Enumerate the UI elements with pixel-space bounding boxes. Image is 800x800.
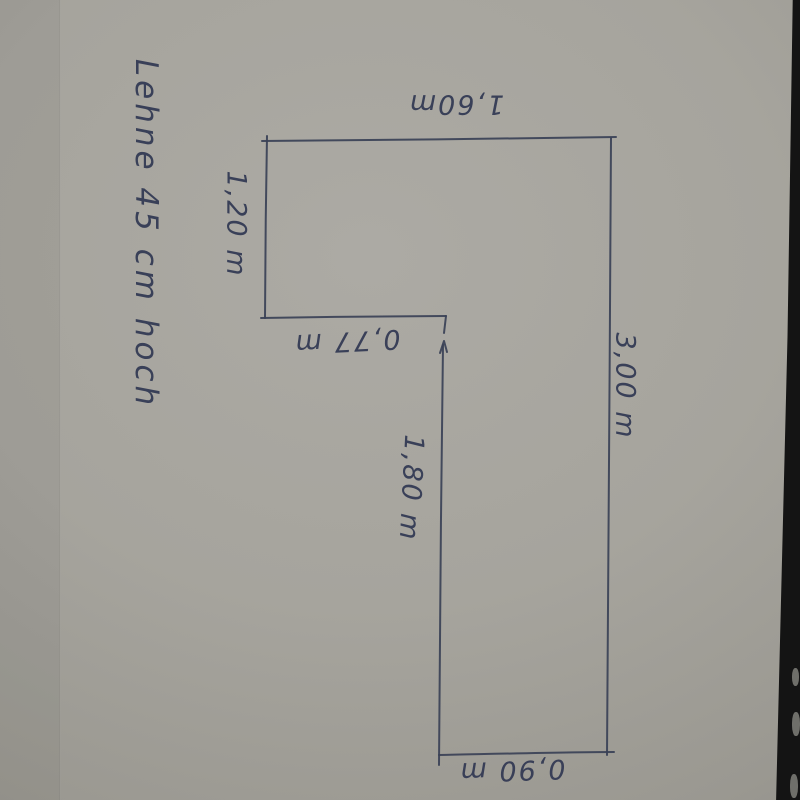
edge-highlight-blob bbox=[792, 712, 800, 736]
shape-top-edge bbox=[262, 137, 616, 141]
shape-right-edge bbox=[607, 138, 611, 755]
dimension-label-right: 3,00 m bbox=[610, 332, 641, 439]
shape-inner-horizontal-edge bbox=[261, 316, 446, 318]
paper-photo-background: 1,60m 1,20 m 0,77 m 3,00 m 1,80 m 0,90 m… bbox=[0, 0, 800, 800]
dimension-label-left: 1,20 m bbox=[221, 170, 252, 277]
dimension-label-top: 1,60m bbox=[408, 89, 504, 120]
dimension-label-inner-height: 1,80 m bbox=[393, 434, 430, 542]
backrest-height-note: Lehne 45 cm hoch bbox=[128, 59, 164, 409]
shape-corner-stub bbox=[444, 316, 446, 333]
shape-inner-vertical-edge bbox=[439, 345, 443, 765]
edge-highlight-blob bbox=[792, 668, 799, 686]
dimension-label-inner-width: 0,77 m bbox=[293, 323, 401, 360]
shape-left-edge bbox=[265, 136, 267, 318]
dimension-label-bottom: 0,90 m bbox=[458, 753, 566, 788]
floorplan-sketch-svg bbox=[0, 0, 800, 800]
edge-highlight-blob bbox=[790, 774, 798, 798]
